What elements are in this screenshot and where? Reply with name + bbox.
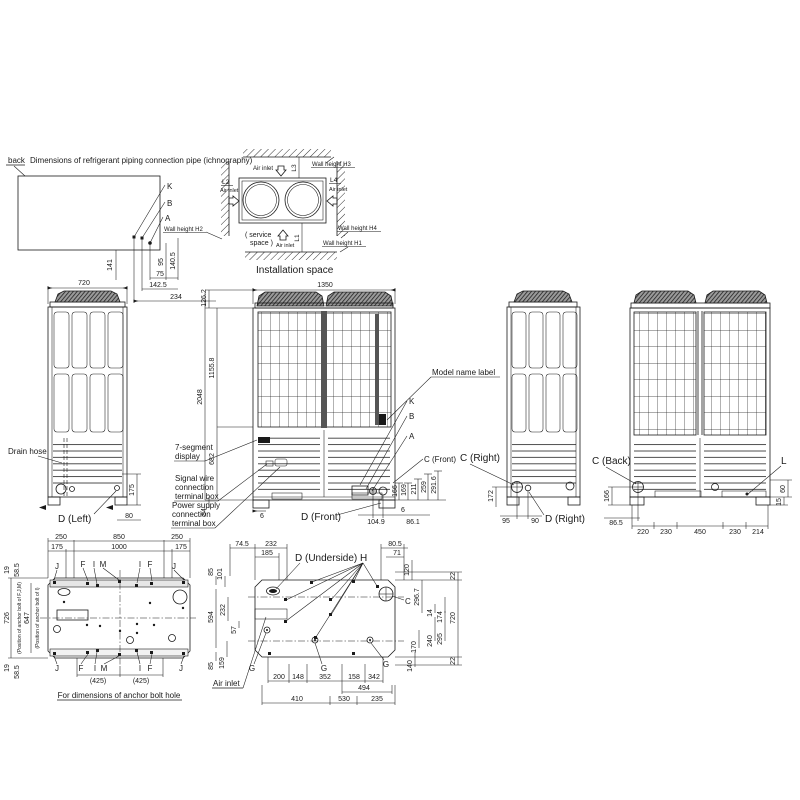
bolt-letter: J	[172, 562, 176, 571]
left-view-caption: D (Left)	[58, 514, 91, 525]
wall-height-h3-label: Wall height H3	[312, 162, 351, 168]
air-inlet-label-top: Air inlet	[253, 166, 273, 172]
dim-label: 158	[348, 674, 360, 681]
dim-label: 220	[637, 529, 649, 536]
dim-label: 104.9	[367, 519, 385, 526]
piping-point-b: B	[167, 199, 172, 208]
signal-wire-label-3: terminal box	[175, 492, 219, 501]
l1-label: L1	[294, 234, 301, 242]
signal-wire-label-2: connection	[175, 483, 214, 492]
c-right-label: C (Right)	[460, 453, 500, 464]
dim-label: 200	[273, 674, 285, 681]
dim-label: 850	[113, 534, 125, 541]
dimension-drawing: back Dimensions of refrigerant piping co…	[0, 0, 800, 800]
bolt-letter: M	[101, 664, 108, 673]
dim-label: 57	[231, 626, 238, 634]
bolt-letter: F	[148, 664, 153, 673]
dim-label: 234	[170, 294, 182, 301]
dim-label: 101	[217, 568, 224, 580]
c-back-label: C (Back)	[592, 456, 631, 467]
underside-caption: D (Underside)	[295, 553, 357, 564]
dim-label: 295	[437, 633, 444, 645]
left-side-view: 720 Drain hose D (Left) 175 80	[8, 280, 141, 525]
power-supply-label-3: terminal box	[172, 519, 216, 528]
dim-label: 148	[292, 674, 304, 681]
front-point-a: A	[409, 432, 415, 441]
front-point-k: K	[409, 397, 415, 406]
wall-height-h4-label: Wall height H4	[338, 226, 377, 232]
dim-label: 720	[78, 280, 90, 287]
dim-label: 185	[261, 550, 273, 557]
dim-label: 259	[421, 481, 428, 493]
dim-label: 230	[729, 529, 741, 536]
dim-label: 230	[660, 529, 672, 536]
anchor-pos-fjm-note: (Position of anchor bolt of F,J,M)	[17, 582, 23, 654]
right-side-view: C (Right) D (Right) 172 95 90	[460, 291, 585, 525]
dim-label: 175	[51, 544, 63, 551]
dim-label: 80.5	[388, 541, 402, 548]
dim-label: 170	[411, 641, 418, 653]
air-inlet-left-arrow-icon	[327, 196, 337, 206]
dim-label: 74.5	[235, 541, 249, 548]
installation-space-caption: Installation space	[256, 265, 334, 276]
power-supply-label-2: connection	[172, 510, 211, 519]
dim-label: 85	[208, 568, 215, 576]
front-point-b: B	[409, 412, 414, 421]
service-space-label-1: ( service	[245, 232, 272, 239]
air-inlet-up-arrow-icon	[278, 230, 288, 240]
air-inlet-down-arrow-icon	[276, 166, 286, 176]
g-point-label: G	[321, 664, 327, 673]
bolt-letter: I	[94, 664, 96, 673]
back-view: C (Back) L 166 86.5 220 230 450 230 214 …	[592, 291, 792, 536]
d-right-label: D (Right)	[545, 514, 585, 525]
bolt-letter: F	[79, 664, 84, 673]
seven-segment-label-1: 7-segment	[175, 443, 214, 452]
bolt-letter: F	[148, 560, 153, 569]
dim-label: 140.5	[170, 252, 177, 270]
bolt-letter: I	[93, 560, 95, 569]
dim-label: 1155.8	[209, 357, 216, 378]
dim-label: 6	[260, 513, 264, 520]
dim-label: 291.6	[431, 476, 438, 494]
c-front-label: C (Front)	[424, 455, 456, 464]
dim-label: 175	[175, 544, 187, 551]
air-inlet-label-left: Air inlet	[220, 188, 239, 194]
bolt-letter: J	[179, 664, 183, 673]
dim-label: 594	[208, 611, 215, 623]
service-space-label-2: space )	[250, 240, 273, 247]
dim-label: 95	[158, 258, 165, 266]
model-name-label: Model name label	[432, 368, 495, 377]
anchor-view-caption: For dimensions of anchor bolt hole	[58, 691, 181, 700]
h-points-label: H	[360, 553, 367, 564]
dim-label: 86.5	[609, 520, 623, 527]
dim-label: 342	[368, 674, 380, 681]
air-inlet-right-arrow-icon	[229, 196, 239, 206]
underside-view: D (Underside) H G G G C Air inlet 74.5 2…	[208, 541, 462, 705]
installation-space-view: Air inlet L3 Wall height H3 L2 Air inlet…	[163, 149, 381, 276]
l-point-label: L	[781, 456, 787, 467]
anchor-bolt-view: 250 850 250 175 1000 175 J F I M I F J J…	[4, 534, 196, 700]
dim-label: 126.2	[201, 289, 208, 307]
piping-point-a: A	[165, 214, 171, 223]
piping-point-k: K	[167, 182, 173, 191]
dim-label: 494	[358, 685, 370, 692]
dim-label: 58.5	[14, 665, 21, 679]
dim-label: 726	[4, 612, 11, 624]
dim-label: 232	[220, 604, 227, 616]
dim-label: 296.7	[414, 588, 421, 606]
dim-label: 15	[776, 498, 783, 506]
dim-label: 6	[401, 507, 405, 514]
dim-label: 142.5	[149, 282, 167, 289]
bolt-letter: J	[55, 664, 59, 673]
seven-segment-label-2: display	[175, 452, 200, 461]
seven-segment-display	[258, 437, 270, 443]
dim-label: 141	[107, 259, 114, 271]
underside-holes	[268, 580, 379, 655]
dim-label: 174	[437, 611, 444, 623]
dim-label: 80	[125, 513, 133, 520]
dim-label: 172	[488, 490, 495, 502]
dim-label: 14	[427, 609, 434, 617]
dim-label: 240	[427, 635, 434, 647]
dim-label: 720	[450, 612, 457, 624]
piping-back-label: back	[8, 156, 26, 165]
dim-label: 1000	[111, 544, 127, 551]
right-view-louver-slots	[512, 312, 577, 432]
dim-label: 250	[171, 534, 183, 541]
wall-height-h2-label: Wall height H2	[164, 227, 203, 233]
g-point-label: G	[249, 664, 255, 673]
dim-label: 166	[392, 485, 399, 497]
dim-label: 22	[450, 572, 457, 580]
l3-label: L3	[291, 164, 298, 172]
dim-label: 450	[694, 529, 706, 536]
bolt-letter: J	[55, 562, 59, 571]
dim-label: 75	[156, 271, 164, 278]
dim-label: 647	[24, 612, 31, 624]
dim-label: 90	[531, 518, 539, 525]
drain-hose-label: Drain hose	[8, 447, 47, 456]
air-inlet-label-right: Air inlet	[329, 187, 348, 193]
signal-wire-label-1: Signal wire	[175, 474, 215, 483]
bolt-letter: I	[139, 560, 141, 569]
dim-label: 140	[407, 660, 414, 672]
dim-label: 214	[752, 529, 764, 536]
dim-label: 71	[393, 550, 401, 557]
dim-label: 235	[371, 696, 383, 703]
l4-label: L4	[330, 177, 338, 184]
dim-label: 1350	[317, 282, 333, 289]
dim-label: 352	[319, 674, 331, 681]
bolt-letter: I	[139, 664, 141, 673]
air-inlet-label-bottom: Air inlet	[276, 243, 295, 249]
dim-label: 211	[411, 483, 418, 494]
d-front-label: D (Front)	[301, 512, 341, 523]
dim-label: 159	[219, 657, 226, 669]
dim-label: 86.1	[406, 519, 420, 526]
anchor-pos-i-note: (Position of anchor bolt of I)	[35, 587, 41, 648]
dim-label: 169	[401, 484, 408, 496]
dim-label: 250	[55, 534, 67, 541]
dim-label: 19	[4, 566, 11, 574]
bolt-letter: M	[100, 560, 107, 569]
piping-view: back Dimensions of refrigerant piping co…	[6, 156, 253, 303]
dim-label: 19	[4, 664, 11, 672]
left-view-louver-slots	[54, 312, 123, 432]
dim-label: 95	[502, 518, 510, 525]
underside-air-inlet-label: Air inlet	[213, 679, 240, 688]
dim-label: 232	[265, 541, 277, 548]
power-supply-label-1: Power supply	[172, 501, 220, 510]
dim-label: 58.5	[14, 563, 21, 577]
technical-drawing-page: back Dimensions of refrigerant piping co…	[0, 0, 800, 800]
bolt-letter: F	[81, 560, 86, 569]
dim-label: 166	[604, 490, 611, 502]
dim-label: 120	[404, 564, 411, 576]
dim-label: (425)	[90, 678, 106, 685]
dim-label: 85	[208, 662, 215, 670]
dim-label: 22	[450, 657, 457, 665]
dim-label: 2048	[197, 389, 204, 405]
dim-label: 410	[291, 696, 303, 703]
dim-label: 60	[780, 485, 787, 493]
dim-label: (425)	[133, 678, 149, 685]
model-name-plate	[379, 414, 386, 425]
dim-label: 175	[129, 484, 136, 496]
g-point-label: G	[383, 660, 389, 669]
l2-label: L2	[222, 179, 230, 186]
dim-label: 530	[338, 696, 350, 703]
c-point-label: C	[405, 597, 411, 606]
front-view: 1350 2048 126.2 1155.8 682 84 6 104.9 6 …	[171, 282, 500, 528]
piping-title: Dimensions of refrigerant piping connect…	[30, 156, 253, 165]
wall-height-h1-label: Wall height H1	[323, 241, 362, 247]
